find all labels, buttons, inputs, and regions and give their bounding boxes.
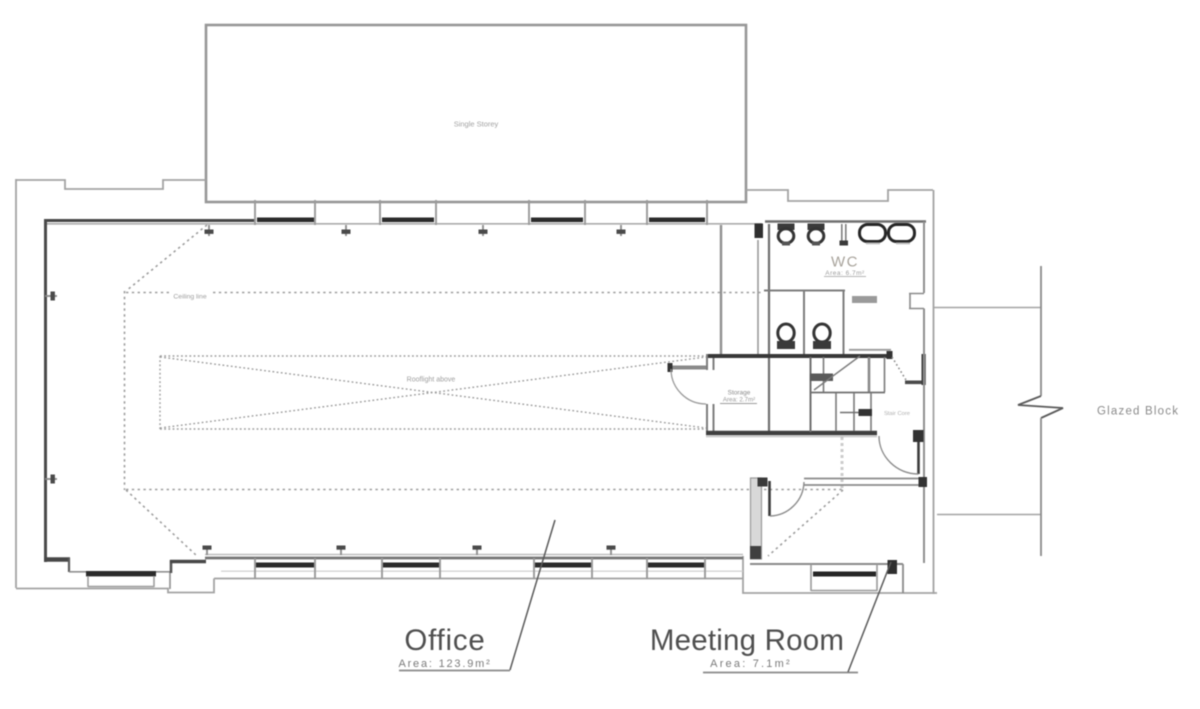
svg-text:Meeting Room: Meeting Room <box>650 624 844 657</box>
svg-text:Area: 7.1m²: Area: 7.1m² <box>710 658 792 670</box>
svg-text:WC: WC <box>831 254 859 271</box>
svg-text:Area: 6.7m²: Area: 6.7m² <box>825 270 865 277</box>
svg-text:Single Storey: Single Storey <box>454 120 499 129</box>
svg-text:Office: Office <box>404 624 485 657</box>
svg-text:Glazed Block: Glazed Block <box>1097 406 1179 418</box>
svg-text:Rooflight above: Rooflight above <box>407 377 456 384</box>
svg-text:Area: 123.9m²: Area: 123.9m² <box>398 658 491 670</box>
svg-text:Area: 2.7m²: Area: 2.7m² <box>723 397 755 404</box>
svg-text:Ceiling line: Ceiling line <box>173 294 206 301</box>
svg-text:Storage: Storage <box>728 390 751 397</box>
svg-text:Stair Core: Stair Core <box>884 411 910 417</box>
